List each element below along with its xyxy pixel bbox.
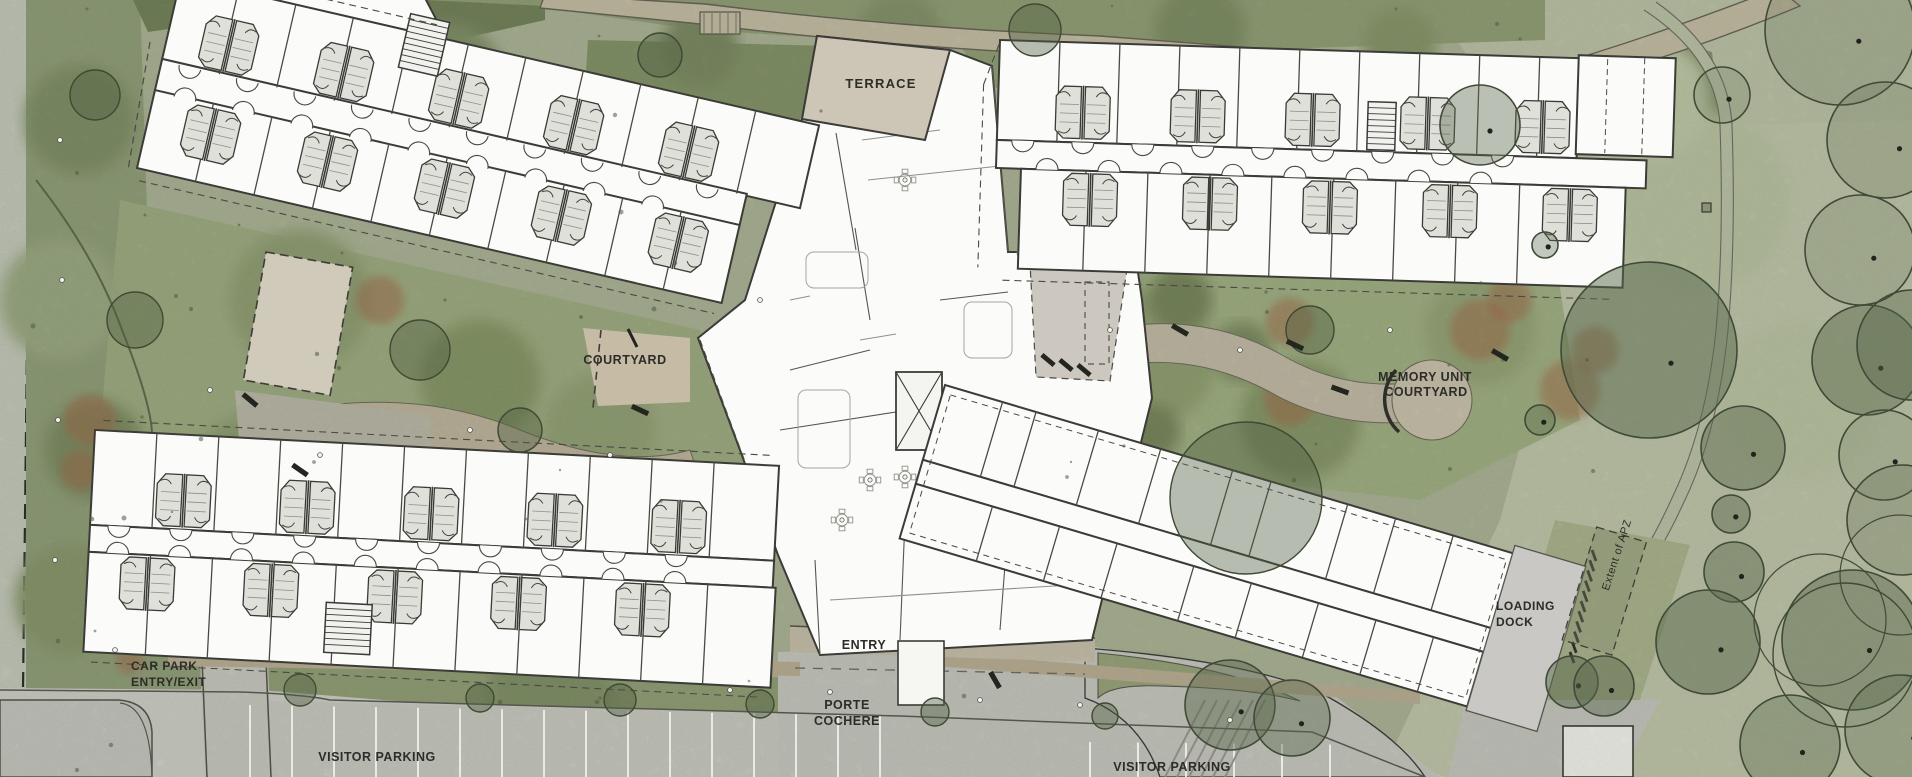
svg-text:TERRACE: TERRACE xyxy=(845,76,916,91)
svg-text:COCHERE: COCHERE xyxy=(814,714,880,728)
svg-text:VISITOR PARKING: VISITOR PARKING xyxy=(1113,760,1230,774)
svg-text:ENTRY/EXIT: ENTRY/EXIT xyxy=(131,675,206,689)
svg-text:LOADING: LOADING xyxy=(1496,599,1555,613)
svg-text:COURTYARD: COURTYARD xyxy=(583,353,666,367)
svg-text:VISITOR PARKING: VISITOR PARKING xyxy=(318,750,435,764)
svg-text:MEMORY UNIT: MEMORY UNIT xyxy=(1378,370,1472,384)
svg-text:PORTE: PORTE xyxy=(824,698,870,712)
svg-text:COURTYARD: COURTYARD xyxy=(1384,385,1467,399)
svg-text:CAR PARK: CAR PARK xyxy=(131,659,197,673)
svg-text:ENTRY: ENTRY xyxy=(842,638,887,652)
svg-text:DOCK: DOCK xyxy=(1496,615,1533,629)
